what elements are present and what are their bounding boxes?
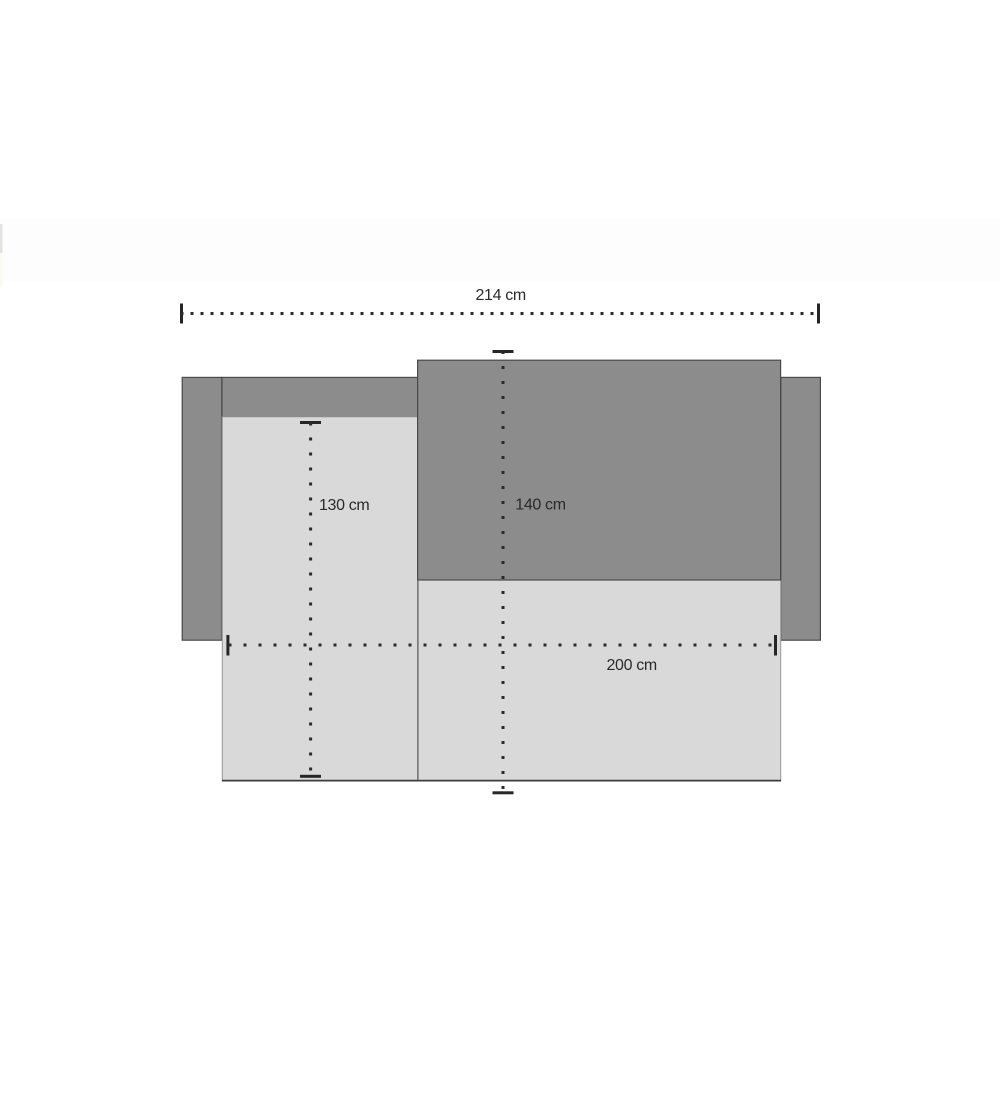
svg-text:140 cm: 140 cm xyxy=(515,497,565,514)
svg-text:214 cm: 214 cm xyxy=(476,287,526,304)
svg-text:200 cm: 200 cm xyxy=(607,657,657,674)
svg-text:130 cm: 130 cm xyxy=(319,497,369,514)
